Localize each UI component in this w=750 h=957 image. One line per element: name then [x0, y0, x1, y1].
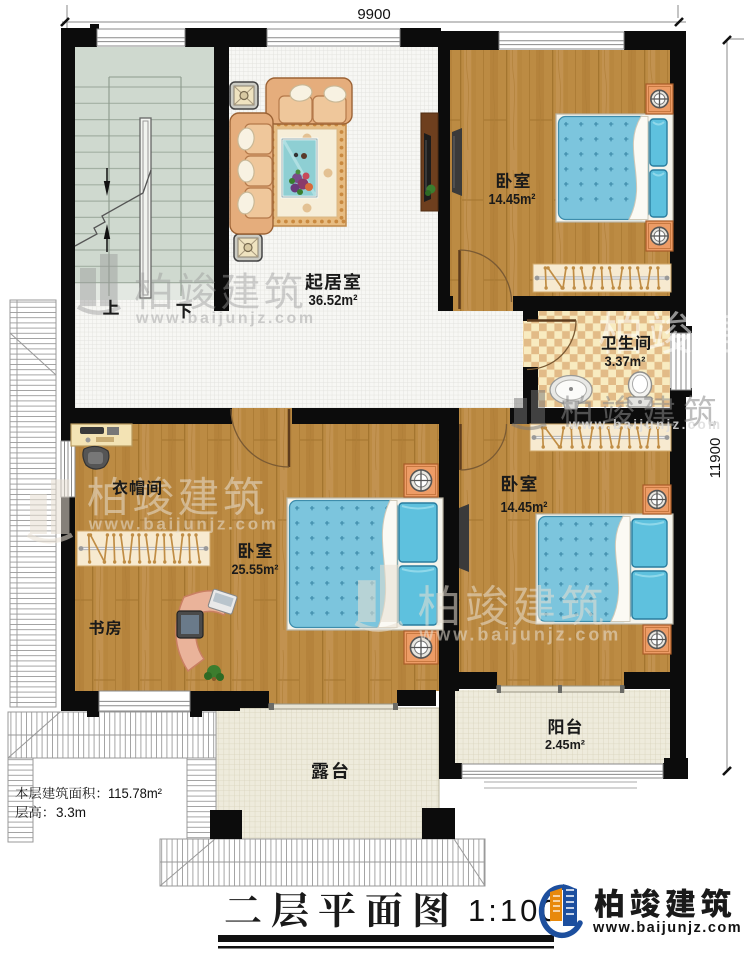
svg-text:25.55m²: 25.55m² [232, 561, 279, 577]
svg-text:115.78m²: 115.78m² [108, 786, 162, 801]
svg-text:14.45m²: 14.45m² [489, 191, 536, 208]
svg-text:www.baijunjz.com: www.baijunjz.com [418, 624, 621, 644]
svg-text:36.52m²: 36.52m² [309, 292, 358, 309]
svg-text:www.baijunjz.com: www.baijunjz.com [88, 515, 279, 534]
svg-text:11900: 11900 [707, 438, 724, 479]
svg-text:3.37m²: 3.37m² [605, 354, 646, 369]
svg-text:9900: 9900 [357, 6, 390, 23]
svg-text:2.45m²: 2.45m² [545, 737, 586, 752]
svg-text:3.3m: 3.3m [56, 805, 86, 820]
svg-text:www.baijunjz.com: www.baijunjz.com [135, 310, 316, 327]
svg-text:www.baijunjz.com: www.baijunjz.com [592, 920, 742, 936]
svg-text:www.baijunjz.com: www.baijunjz.com [568, 417, 722, 432]
svg-text:14.45m²: 14.45m² [501, 499, 548, 516]
